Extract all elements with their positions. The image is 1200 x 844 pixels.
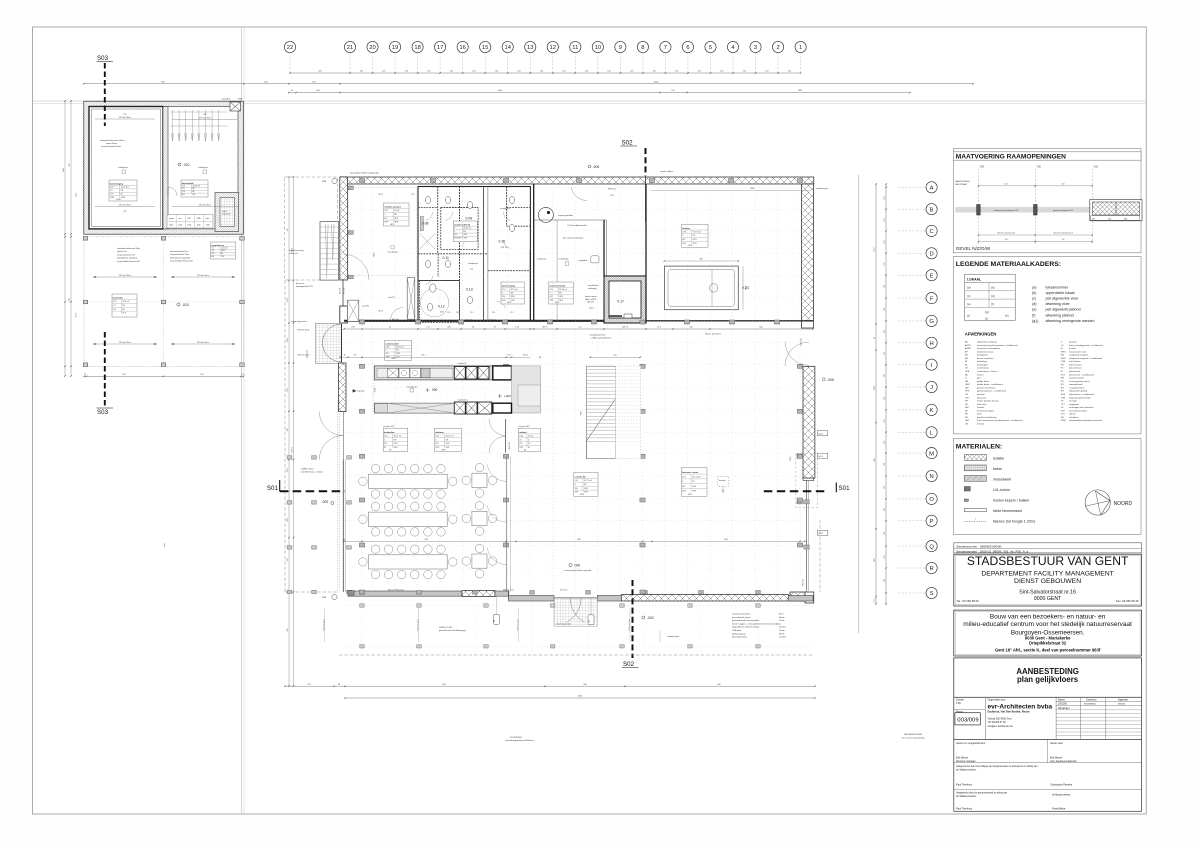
svg-text:7/18 huh 36cm: 7/18 huh 36cm [197,275,210,277]
svg-text:BG: BG [965,355,968,357]
svg-text:GPS: GPS [688,245,693,247]
svg-text:D3: D3 [589,620,591,622]
svg-text:375: 375 [123,211,126,213]
svg-text:binnenafwerking: binnenafwerking [732,637,747,639]
svg-text:307.5: 307.5 [76,313,78,318]
svg-text:387: 387 [203,114,206,116]
svg-text:silikaatsteen + schilderwerk: silikaatsteen + schilderwerk [1069,393,1095,396]
svg-text:7/18 huh 36cm: 7/18 huh 36cm [119,275,132,277]
svg-text:P: P [930,519,934,525]
svg-text:R: R [930,566,934,572]
svg-text:lichte akoestische scheidingsw: lichte akoestische scheidingswand + schi… [977,419,1024,422]
svg-text:0.04: 0.04 [435,435,439,437]
svg-text:0.17: 0.17 [617,300,624,304]
svg-text:120: 120 [884,330,886,333]
svg-text:0.08: 0.08 [422,222,429,226]
svg-text:7/18 huh 30cm: 7/18 huh 30cm [297,330,310,332]
svg-text:705: 705 [69,298,71,301]
svg-text:(b): (b) [991,286,995,290]
svg-text:24.27 m2: 24.27 m2 [121,187,129,189]
svg-text:verdiepte goot: verdiepte goot [667,635,679,638]
svg-text:PC: PC [1061,368,1064,370]
svg-text:RG: RG [1061,387,1065,389]
svg-text:407: 407 [682,239,685,241]
svg-text:(e): (e) [1032,308,1036,312]
svg-text:120: 120 [884,420,886,423]
svg-text:GBS: GBS [965,384,970,386]
svg-text:RO 0.03 RQ 0.02: RO 0.03 RQ 0.02 [388,590,404,592]
svg-text:silikaatsteen gelijnd: silikaatsteen gelijnd [1069,390,1088,393]
svg-text:705: 705 [287,559,289,562]
svg-text:(d): (d) [1032,302,1036,306]
svg-text:(e): (e) [967,302,971,306]
svg-text:zie plan 009: zie plan 009 [519,426,531,428]
svg-text:W: W [389,449,391,451]
svg-text:12.5: 12.5 [411,194,415,196]
svg-text:0.02: 0.02 [682,476,686,478]
svg-text:samengestelde parket: samengestelde parket [1069,380,1090,383]
svg-text:26 m2: 26 m2 [394,210,399,212]
svg-text:0.21: 0.21 [182,185,186,187]
svg-text:GW: GW [965,397,969,399]
svg-text:peil afgewerkte vloer: peil afgewerkte vloer [1046,297,1080,301]
svg-text:120: 120 [884,555,886,558]
svg-text:148.75: 148.75 [622,327,629,329]
svg-text:24.10 m2: 24.10 m2 [192,185,200,187]
svg-text:22mm: 22mm [779,620,785,622]
svg-text:SG: SG [1061,391,1064,393]
svg-text:120L: 120L [178,225,182,227]
svg-text:lockers bezoekers: lockers bezoekers [705,334,721,336]
svg-text:13: 13 [527,45,533,51]
svg-text:GPS: GPS [688,494,693,496]
svg-text:gladde beton + schilderwerk: gladde beton + schilderwerk [977,383,1004,386]
svg-text:D: D [930,252,934,258]
svg-text:10: 10 [595,45,601,51]
svg-text:stalen looprooster: stalen looprooster [291,320,307,323]
svg-text:1425: 1425 [287,518,289,522]
svg-text:6: 6 [686,45,689,51]
svg-text:akoestische gipskartonplaten +: akoestische gipskartonplaten + schilderw… [977,344,1019,347]
svg-text:S02: S02 [622,140,634,147]
svg-text:MATERIALEN:: MATERIALEN: [956,444,1002,451]
svg-text:kapstok: kapstok [358,390,365,393]
svg-text:overdekt terras + balkon: overdekt terras + balkon [301,471,324,474]
svg-text:4.9 m2: 4.9 m2 [528,435,534,437]
svg-text:9000 GENT: 9000 GENT [1034,596,1062,602]
svg-text:deur met: deur met [296,282,304,285]
svg-text:LAS: LAS [965,419,970,422]
svg-text:stalen loogrooster: stalen loogrooster [556,623,571,626]
svg-text:Getekend: Getekend [1086,699,1097,702]
svg-text:56.8 m2: 56.8 m2 [123,301,130,303]
svg-text:Eeckhout, Van Den Broeke, Reus: Eeckhout, Van Den Broeke, Reuse [988,710,1031,714]
svg-text:270: 270 [110,194,113,196]
svg-text:Besteknummer : 08506/01/00/0: Besteknummer : 08506/01/00/00 [957,544,1002,548]
svg-text:afgestreken druklaag: afgestreken druklaag [977,341,997,344]
svg-text:229: 229 [492,312,495,314]
svg-text:2.05 m2: 2.05 m2 [221,247,228,249]
svg-text:50: 50 [343,539,345,541]
svg-text:Schaal :: Schaal : [956,699,965,702]
svg-text:Driepikkelstraat 32: Driepikkelstraat 32 [1029,641,1067,646]
svg-text:AS: AS [980,165,984,169]
svg-text:OSB-plaat: OSB-plaat [732,629,742,632]
svg-text:12: 12 [550,45,556,51]
svg-text:367.5: 367.5 [378,310,383,312]
svg-text:705: 705 [69,163,71,166]
svg-text:policarbonaat: policarbonaat [1069,367,1082,370]
svg-text:GW: GW [446,447,449,449]
svg-text:RO: RO [1061,384,1065,386]
svg-text:B: B [930,207,934,213]
svg-text:zijpaneel gordijngevel 111: zijpaneel gordijngevel 111 [1053,210,1074,212]
svg-text:buitenklas: buitenklas [113,297,124,300]
svg-text:120: 120 [884,374,886,377]
svg-text:ZGW: ZGW [1061,420,1066,422]
svg-text:borstwel: borstwel [719,479,726,482]
svg-text:effectieve opening 120: effectieve opening 120 [997,232,1015,235]
svg-text:spouw 5cm: spouw 5cm [117,251,127,253]
svg-text:schrobputje: schrobputje [558,258,569,261]
svg-text:xxxxxx: xxxxxx [1118,704,1126,706]
svg-text:-010: -010 [182,303,189,307]
svg-text:gootuitlaat: gootuitlaat [222,98,231,101]
svg-text:270: 270 [113,309,116,311]
svg-text:J: J [930,385,933,391]
svg-text:Q: Q [929,544,934,550]
svg-text:stalen net: stalen net [289,252,298,255]
svg-text:0: 0 [384,439,385,441]
svg-text:126: 126 [456,312,459,314]
svg-text:123.5: 123.5 [287,388,289,393]
svg-text:120: 120 [1062,239,1065,241]
svg-text:002 2: 002 2 [819,533,824,535]
svg-text:AGPS: AGPS [965,344,971,347]
svg-text:-10: -10 [113,305,116,307]
svg-text:de Burgemeester,: de Burgemeester, [1052,794,1071,797]
svg-text:verharding gebakken kleiklink: verharding gebakken kleiklinkers [505,740,534,742]
svg-text:7/18 huh 36cm: 7/18 huh 36cm [119,205,132,207]
svg-text:001 1: 001 1 [819,456,824,458]
svg-text:0.07: 0.07 [384,210,388,212]
svg-text:GPS: GPS [441,449,446,451]
svg-text:N: N [930,474,934,480]
svg-text:28mm: 28mm [779,633,785,635]
svg-text:BL: BL [192,191,194,193]
svg-text:recuperatiesteen 90mm: recuperatiesteen 90mm [101,145,121,148]
svg-text:Bel 0.01: Bel 0.01 [392,319,399,321]
svg-text:gietvloer: gietvloer [977,393,985,396]
svg-text:LOKAAL: LOKAAL [967,278,981,282]
svg-text:141.15m2: 141.15m2 [692,476,700,478]
svg-text:ZGW: ZGW [116,199,121,201]
svg-text:120: 120 [884,241,886,244]
svg-text:(h): (h) [1005,314,1009,318]
svg-text:255: 255 [519,443,522,445]
svg-text:120: 120 [884,285,886,288]
svg-text:GEVEL N/Z/O/W: GEVEL N/Z/O/W [956,246,991,251]
svg-text:C68: C68 [550,300,553,302]
svg-text:Paul Teerlinck: Paul Teerlinck [956,806,973,810]
svg-text:MAATVOERING RAAMOPENINGEN: MAATVOERING RAAMOPENINGEN [956,154,1066,161]
svg-text:MEETSTAAT: MEETSTAAT [955,183,967,186]
svg-text:gipskartonplaten + schilderwer: gipskartonplaten + schilderwerk [977,390,1007,393]
svg-text:002 1: 002 1 [819,434,824,436]
svg-text:0: 0 [575,484,576,486]
svg-text:WV: WV [1061,355,1065,357]
svg-text:DO 0.01: DO 0.01 [560,590,568,592]
svg-text:S01: S01 [267,485,279,492]
svg-text:luchtgroep: luchtgroep [537,258,547,261]
svg-text:terplaatse gestort beton: terplaatse gestort beton [1069,396,1092,399]
svg-text:407: 407 [550,296,553,298]
svg-text:0.01: 0.01 [575,480,579,482]
svg-text:centrale hal: centrale hal [575,475,587,478]
svg-text:401: 401 [200,374,203,376]
svg-text:NRG: NRG [221,250,226,252]
svg-text:160: 160 [287,429,289,432]
svg-text:BH: BH [965,358,968,360]
svg-text:7: 7 [664,45,667,51]
svg-text:120: 120 [884,218,886,221]
svg-text:RW 0.01: RW 0.01 [608,189,617,191]
svg-text:190.5: 190.5 [76,193,78,198]
svg-text:GPS: GPS [555,302,560,304]
svg-text:Bel 0.18: Bel 0.18 [509,442,511,449]
svg-text:0: 0 [435,439,436,441]
svg-text:RD: RD [965,414,969,416]
svg-text:cafetaria: cafetaria [435,431,444,434]
svg-text:ingang grondbus: ingang grondbus [558,215,573,217]
svg-text:WGRC 0.01: WGRC 0.01 [503,590,515,592]
svg-text:11: 11 [572,45,578,51]
svg-text:FW/GPS: FW/GPS [454,238,462,240]
svg-text:0.10: 0.10 [499,240,506,244]
svg-text:GPS: GPS [391,358,396,360]
svg-text:0.09: 0.09 [466,217,473,221]
svg-text:de Stadssecretaris,: de Stadssecretaris, [956,795,977,798]
svg-text:osb 3-platen: osb 3-platen [1069,360,1081,363]
svg-text:GW: GW [575,492,578,494]
svg-text:faience: faience [977,374,985,376]
svg-text:102.5: 102.5 [287,298,289,303]
svg-text:15: 15 [482,45,488,51]
svg-text:7/18 huh 36cm: 7/18 huh 36cm [197,342,210,344]
svg-text:0: 0 [384,214,385,216]
svg-text:zichtbaarblijvend gelijnd mets: zichtbaarblijvend gelijnd metselwerk [1069,419,1103,422]
svg-text:0: 0 [454,227,455,229]
svg-text:8mm: 8mm [779,614,784,616]
svg-text:S: S [930,591,934,597]
svg-text:schrobputje: schrobputje [387,251,398,254]
svg-text:rest: rest [178,217,182,220]
svg-text:O: O [929,497,934,503]
svg-text:(f): (f) [1032,313,1035,317]
svg-text:(i): (i) [985,317,988,321]
svg-text:2530: 2530 [654,81,660,83]
svg-text:SGS: SGS [1061,394,1066,396]
svg-text:270: 270 [211,253,214,255]
svg-text:S01: S01 [839,485,851,492]
svg-text:(f): (f) [991,302,994,306]
svg-text:macrorooster staal: macrorooster staal [1069,350,1087,353]
svg-text:(b): (b) [1032,291,1036,295]
svg-text:pleisterwerk: pleisterwerk [1069,370,1081,373]
svg-text:-10: -10 [182,188,185,190]
svg-text:gebitumineerde houtvezelplaat: gebitumineerde houtvezelplaat [732,619,760,622]
svg-text:vezelcement platen: vezelcement platen [1069,409,1088,412]
svg-text:koele berging: koele berging [502,286,516,288]
svg-text:oppervlakte lokaal: oppervlakte lokaal [1046,291,1075,295]
svg-text:+ 2 ABC poederblussers: + 2 ABC poederblussers [590,337,612,340]
svg-text:opgevuld met cellulose-isolati: opgevuld met cellulose-isolatie [732,626,760,629]
svg-text:GM: GM [965,387,969,389]
svg-text:geventileerde spouw: geventileerde spouw [732,616,751,619]
svg-text:407: 407 [435,443,438,445]
svg-text:TGB: TGB [1061,397,1066,399]
svg-text:VLK: VLK [1061,414,1066,416]
svg-text:M: M [1061,348,1063,350]
svg-text:120L: 120L [197,225,201,227]
svg-text:ZGW: ZGW [110,197,115,199]
svg-text:120L: 120L [206,225,210,227]
svg-text:keramische tegels: keramische tegels [977,409,994,412]
svg-text:spouw 50mm: spouw 50mm [106,143,118,145]
svg-text:9: 9 [619,45,622,51]
svg-text:000: 000 [432,388,438,392]
svg-text:recuperatiesteen: recuperatiesteen [1069,386,1085,389]
svg-text:zie plan 009: zie plan 009 [383,426,395,428]
svg-text:BL: BL [121,194,123,196]
svg-text:18: 18 [84,374,86,376]
svg-text:blauwe hardsteen: blauwe hardsteen [977,357,994,360]
svg-text:322mm: 322mm [779,627,786,629]
svg-text:leisteen: leisteen [977,423,985,426]
svg-text:lichte binnenwand: lichte binnenwand [993,509,1022,513]
svg-text:20: 20 [369,45,375,51]
svg-text:0.2: 0.2 [211,247,214,249]
svg-text:ARNP: ARNP [965,347,971,350]
svg-text:roosterplafond: roosterplafond [1069,383,1083,386]
svg-text:lavabo 11: lavabo 11 [458,363,467,365]
svg-text:1087.4: 1087.4 [291,447,293,453]
svg-text:0.18: 0.18 [682,231,686,233]
svg-text:0.05: 0.05 [384,435,388,437]
svg-text:R2 0.02: R2 0.02 [344,288,346,294]
svg-text:120: 120 [884,197,886,200]
svg-text:schrobputje: schrobputje [198,166,208,169]
svg-text:16: 16 [459,45,465,51]
svg-text:-002: -002 [647,616,654,620]
svg-text:info@evr-architecten.be: info@evr-architecten.be [988,725,1014,728]
svg-text:pleisterwerk + schilderwerk: pleisterwerk + schilderwerk [1069,373,1095,376]
svg-text:leidingenspouw: leidingenspouw [732,633,746,635]
svg-text:buitenberging: buitenberging [110,182,124,185]
svg-text:metselwerk: metselwerk [993,478,1011,482]
svg-text:-10: -10 [110,190,113,192]
svg-text:Opgemaakt door:: Opgemaakt door: [988,699,1007,702]
svg-text:S03: S03 [97,55,109,62]
svg-text:volkern: volkern [1069,413,1077,416]
svg-text:W: W [528,447,530,449]
svg-text:0: 0 [386,350,387,352]
svg-text:120L: 120L [187,225,191,227]
svg-text:zichtbeton: zichtbeton [1069,416,1079,419]
svg-text:meegaand voegwerk + schilderwe: meegaand voegwerk + schilderwerk [1069,357,1103,360]
svg-text:407: 407 [384,218,387,220]
svg-text:0.13: 0.13 [466,288,473,292]
svg-text:kast nutsvoorzieningen: kast nutsvoorzieningen [563,237,583,240]
svg-text:schrobputje: schrobputje [500,207,510,210]
svg-text:vast/circulatie: vast/circulatie [386,342,400,345]
svg-text:holle vloer: holle vloer [977,403,987,406]
svg-text:BGB: BGB [1124,218,1127,220]
svg-text:glaswand: glaswand [977,397,987,399]
svg-text:loogrooster: loogrooster [222,213,231,216]
svg-text:250: 250 [502,296,505,298]
svg-text:E: E [930,273,934,279]
svg-text:0: 0 [502,292,503,294]
svg-text:schrobputje: schrobputje [468,262,478,265]
svg-text:66.19 m2: 66.19 m2 [446,435,454,437]
svg-text:Paul Teerlinck: Paul Teerlinck [956,783,973,787]
svg-text:Frank Beke: Frank Beke [1052,806,1066,810]
svg-text:lokaalnummer: lokaalnummer [1046,286,1069,290]
svg-text:307.5: 307.5 [287,468,289,473]
svg-text:gebakken kleiklinkers: gebakken kleiklinkers [977,416,997,419]
svg-text:schrobputje: schrobputje [118,166,128,169]
svg-text:163.2: 163.2 [523,354,529,356]
svg-text:BUT: BUT [1092,218,1095,220]
svg-text:S02: S02 [623,661,635,668]
svg-text:G: G [929,319,934,325]
svg-text:houten I-liggers + strips gebi: houten I-liggers + strips gebitumineerde… [732,622,781,625]
svg-text:Bel 0.03: Bel 0.03 [465,319,472,321]
svg-text:-005: -005 [593,165,600,169]
svg-text:RW 0.01: RW 0.01 [803,579,805,586]
svg-text:126: 126 [470,269,473,271]
svg-text:8: 8 [641,45,644,51]
svg-text:evr-Architecten bvba: evr-Architecten bvba [988,704,1053,711]
svg-text:120: 120 [884,397,886,400]
svg-text:0.19: 0.19 [113,301,117,303]
svg-text:en geschilderd met borstel?: en geschilderd met borstel? [170,260,193,263]
svg-text:0.15: 0.15 [550,289,554,291]
svg-text:banner annex: banner annex [585,295,597,298]
svg-text:LEGENDE MATERIAALKADERS:: LEGENDE MATERIAALKADERS: [956,261,1061,268]
svg-text:PMD: PMD [197,218,202,220]
svg-text:kast F2: kast F2 [388,296,395,299]
svg-text:120: 120 [884,486,886,489]
svg-text:0.11: 0.11 [443,256,449,260]
svg-text:gewoon metselwerk: gewoon metselwerk [977,386,996,389]
svg-text:RW w75: RW w75 [587,302,594,304]
svg-text:betontegels: betontegels [977,363,988,366]
svg-text:verhoogde vloer (bamboe): verhoogde vloer (bamboe) [1069,406,1094,409]
svg-text:367.5: 367.5 [378,194,383,196]
svg-text:H: H [930,341,934,347]
svg-text:95.71 m2: 95.71 m2 [584,480,592,482]
svg-text:7/18 huh 36cm: 7/18 huh 36cm [199,118,212,120]
svg-text:0.12: 0.12 [438,305,445,309]
svg-text:isolerende bakstenen 14cm: isolerende bakstenen 14cm [117,247,141,250]
svg-text:verdiepte goot: verdiepte goot [816,187,828,190]
svg-text:120: 120 [884,441,886,444]
svg-text:8.12 m2: 8.12 m2 [511,289,518,291]
svg-text:003/009: 003/009 [957,717,978,723]
svg-text:254.4: 254.4 [375,388,377,393]
